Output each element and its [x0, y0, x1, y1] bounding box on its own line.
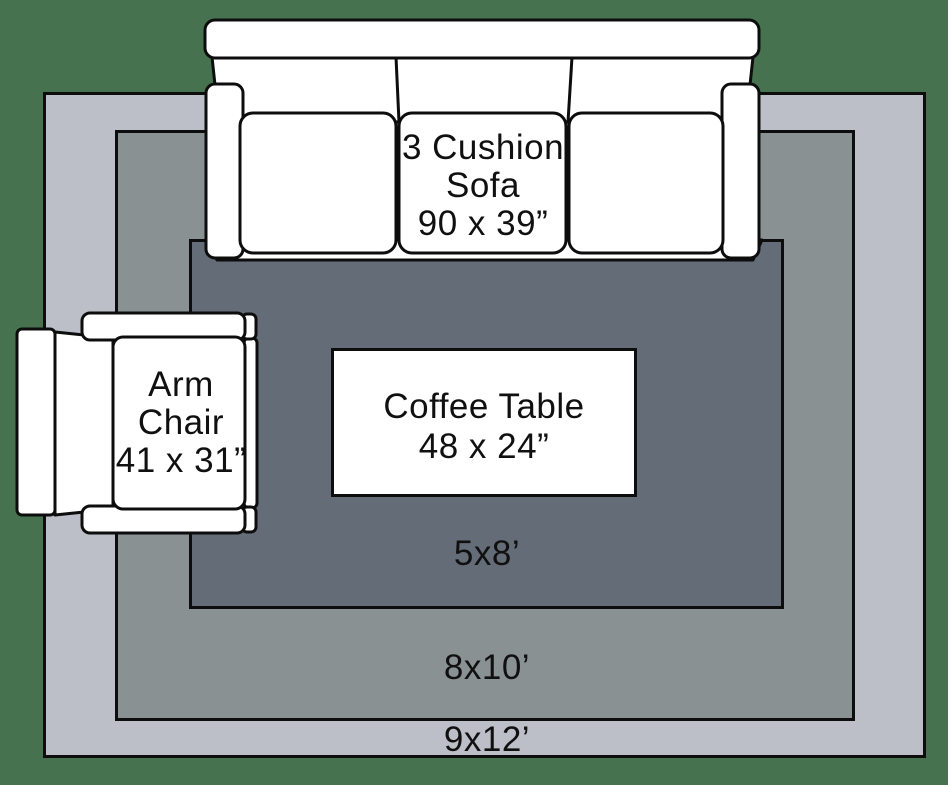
sofa-label-line3: 90 x 39”: [333, 205, 633, 243]
sofa-label-line1: 3 Cushion: [333, 129, 633, 167]
chair-backrest: [17, 329, 55, 515]
sofa-label: 3 Cushion Sofa 90 x 39”: [333, 129, 633, 243]
sofa-label-line2: Sofa: [333, 167, 633, 205]
coffee-table-label: Coffee Table 48 x 24”: [334, 387, 634, 467]
arm-chair-label-line3: 41 x 31”: [71, 442, 291, 480]
arm-chair-label: Arm Chair 41 x 31”: [71, 366, 291, 480]
coffee-table-label-line2: 48 x 24”: [334, 427, 634, 467]
room-background: 3 Cushion Sofa 90 x 39” Arm Chair 41 x 3…: [0, 0, 948, 785]
rug-8x10-label: 8x10’: [387, 649, 587, 687]
arm-chair-label-line1: Arm: [71, 366, 291, 404]
arm-chair-label-line2: Chair: [71, 404, 291, 442]
sofa-armrest-left: [206, 84, 243, 258]
coffee-table-label-line1: Coffee Table: [334, 387, 634, 427]
rug-9x12-label: 9x12’: [387, 721, 587, 759]
sofa-armrest-right: [722, 84, 759, 258]
rug-5x8-label: 5x8’: [387, 535, 587, 573]
sofa-backrest: [205, 20, 759, 58]
